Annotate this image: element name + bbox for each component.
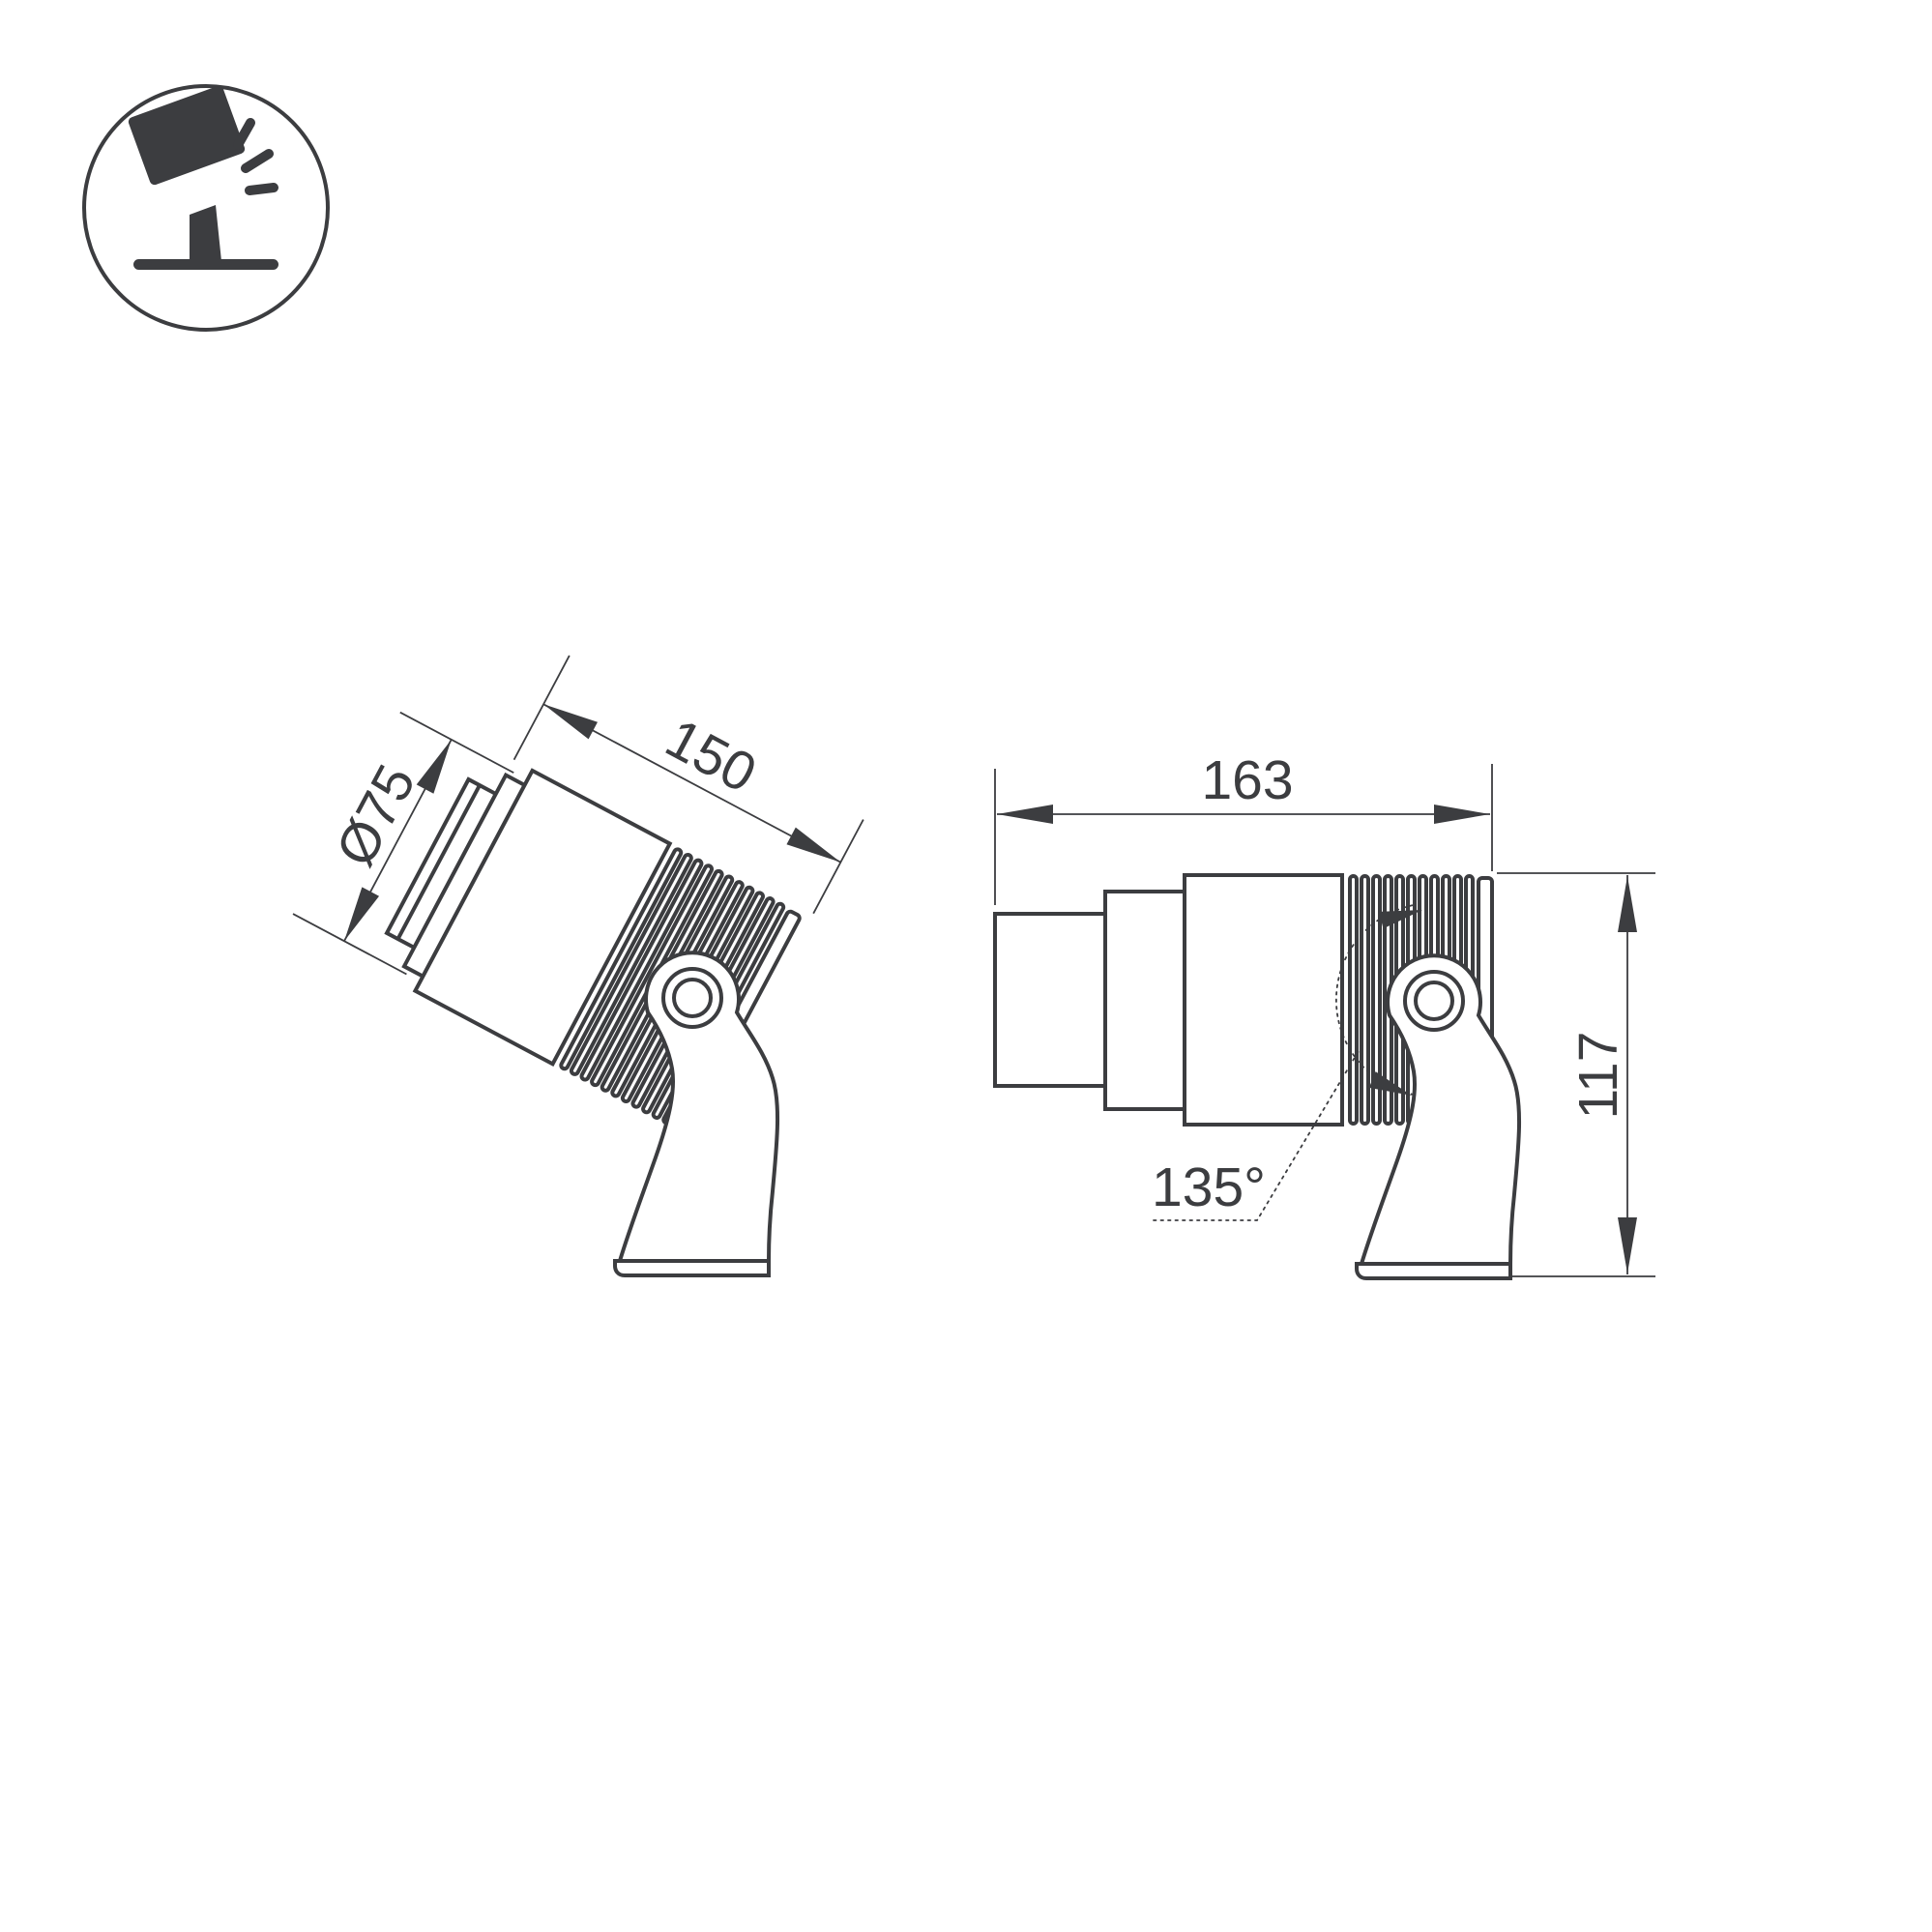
drawing-page: Ø75 150	[0, 0, 1932, 1932]
height-label: 117	[1567, 1032, 1629, 1120]
gland-nut	[1105, 892, 1185, 1109]
height-dimension: 117	[1497, 873, 1655, 1276]
icon-lamp-base	[133, 259, 278, 270]
icon-lamp-stem	[190, 205, 221, 261]
icon-light-rays	[238, 123, 274, 190]
right-view-side-spotlight: 163 117 135°	[995, 749, 1655, 1278]
width-label: 163	[1201, 749, 1293, 811]
angle-label: 135°	[1152, 1156, 1266, 1218]
technical-drawing-canvas: Ø75 150	[0, 0, 1932, 1932]
icon-lamp-head	[127, 84, 246, 186]
left-view-fixture-body: Ø75 150	[284, 589, 870, 1139]
tilted-spotlight-icon	[84, 84, 328, 330]
main-body	[1185, 875, 1342, 1125]
length-label: 150	[656, 707, 766, 805]
diameter-label: Ø75	[324, 755, 427, 876]
cable-gland	[995, 914, 1105, 1086]
left-view-tilted-spotlight: Ø75 150	[284, 589, 870, 1275]
